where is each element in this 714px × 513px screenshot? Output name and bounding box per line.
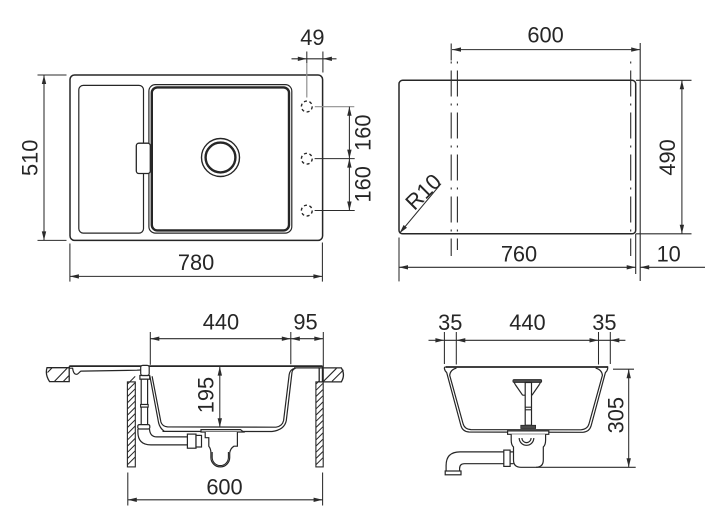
svg-text:440: 440 [509, 310, 545, 335]
svg-text:600: 600 [206, 475, 242, 500]
svg-text:49: 49 [300, 25, 324, 50]
svg-text:95: 95 [293, 309, 317, 334]
svg-text:440: 440 [203, 309, 239, 334]
svg-text:195: 195 [193, 377, 218, 413]
svg-text:35: 35 [592, 310, 616, 335]
svg-text:160: 160 [350, 115, 375, 151]
svg-text:780: 780 [178, 250, 214, 275]
svg-text:305: 305 [604, 397, 629, 433]
svg-text:10: 10 [657, 242, 681, 267]
svg-text:600: 600 [527, 23, 563, 48]
svg-text:510: 510 [17, 140, 42, 176]
svg-text:160: 160 [350, 166, 375, 202]
svg-text:760: 760 [501, 242, 537, 267]
svg-text:35: 35 [438, 310, 462, 335]
svg-text:490: 490 [655, 139, 680, 175]
